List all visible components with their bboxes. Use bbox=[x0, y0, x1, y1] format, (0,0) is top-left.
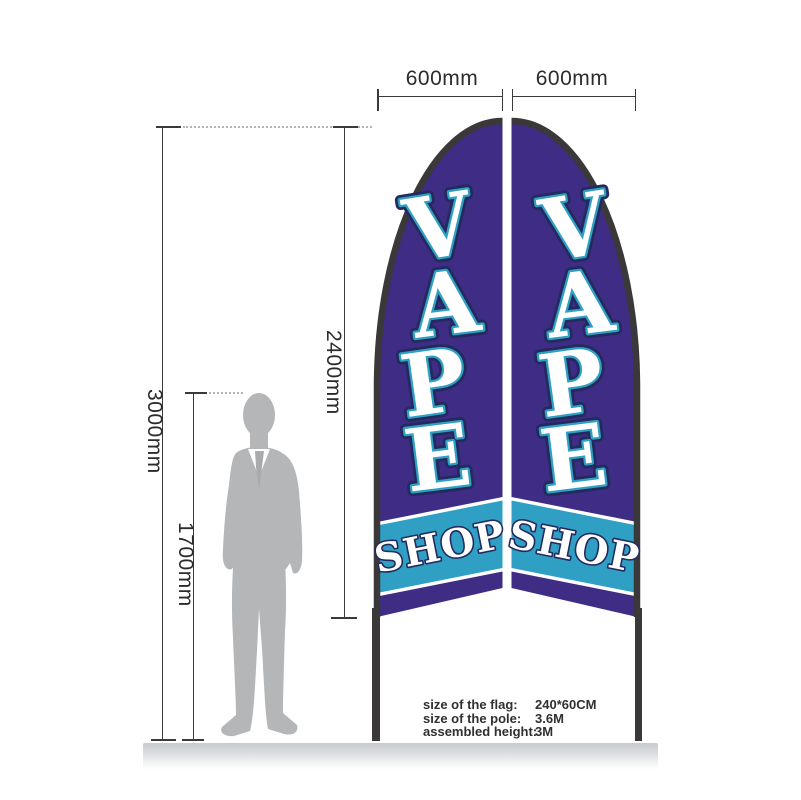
dim-tick bbox=[635, 89, 637, 111]
dim-tick bbox=[377, 89, 379, 111]
spec-row-pole-size: size of the pole: 3.6M bbox=[423, 712, 596, 726]
spec-row-assembled-height: assembled height: 3M bbox=[423, 725, 596, 739]
dim-line-width-right bbox=[512, 96, 635, 98]
spec-value: 3.6M bbox=[535, 712, 564, 726]
flag-pole-right bbox=[635, 608, 643, 741]
spec-row-flag-size: size of the flag: 240*60CM bbox=[423, 698, 596, 712]
letter-e: E bbox=[535, 404, 612, 512]
dim-tick bbox=[333, 126, 358, 128]
product-diagram: 600mm 600mm 3000mm 2400mm 1700mm bbox=[0, 0, 801, 800]
dim-line-width-left bbox=[378, 96, 503, 98]
spec-label: size of the pole: bbox=[423, 712, 535, 726]
person-body bbox=[221, 447, 302, 736]
dim-tick bbox=[512, 89, 514, 111]
dim-tick bbox=[156, 126, 181, 128]
spec-label: assembled height: bbox=[423, 725, 535, 739]
ground-shadow bbox=[143, 743, 658, 770]
dim-label-flag-length: 2400mm bbox=[321, 330, 345, 415]
dim-label-assembled-height: 3000mm bbox=[142, 389, 166, 474]
vape-lettering: V V A A P P E E bbox=[532, 172, 620, 512]
dim-label-width-left: 600mm bbox=[400, 67, 484, 91]
dim-tick bbox=[331, 617, 357, 619]
spec-label: size of the flag: bbox=[423, 698, 535, 712]
dim-label-person-height: 1700mm bbox=[173, 522, 197, 607]
feather-flag-left: V V A A P P E E SHOP bbox=[368, 116, 508, 626]
spec-value: 240*60CM bbox=[535, 698, 596, 712]
letter-e: E bbox=[399, 404, 476, 512]
person-silhouette bbox=[200, 391, 316, 743]
spec-value: 3M bbox=[535, 725, 553, 739]
dim-label-width-right: 600mm bbox=[530, 67, 614, 91]
flag-pole-left bbox=[372, 608, 380, 741]
dim-tick bbox=[502, 89, 504, 111]
person-neck bbox=[250, 429, 268, 449]
dim-tick bbox=[151, 739, 176, 741]
spec-table: size of the flag: 240*60CM size of the p… bbox=[423, 698, 596, 739]
feather-flag-right: V V A A P P E E SHOP bbox=[506, 116, 646, 626]
